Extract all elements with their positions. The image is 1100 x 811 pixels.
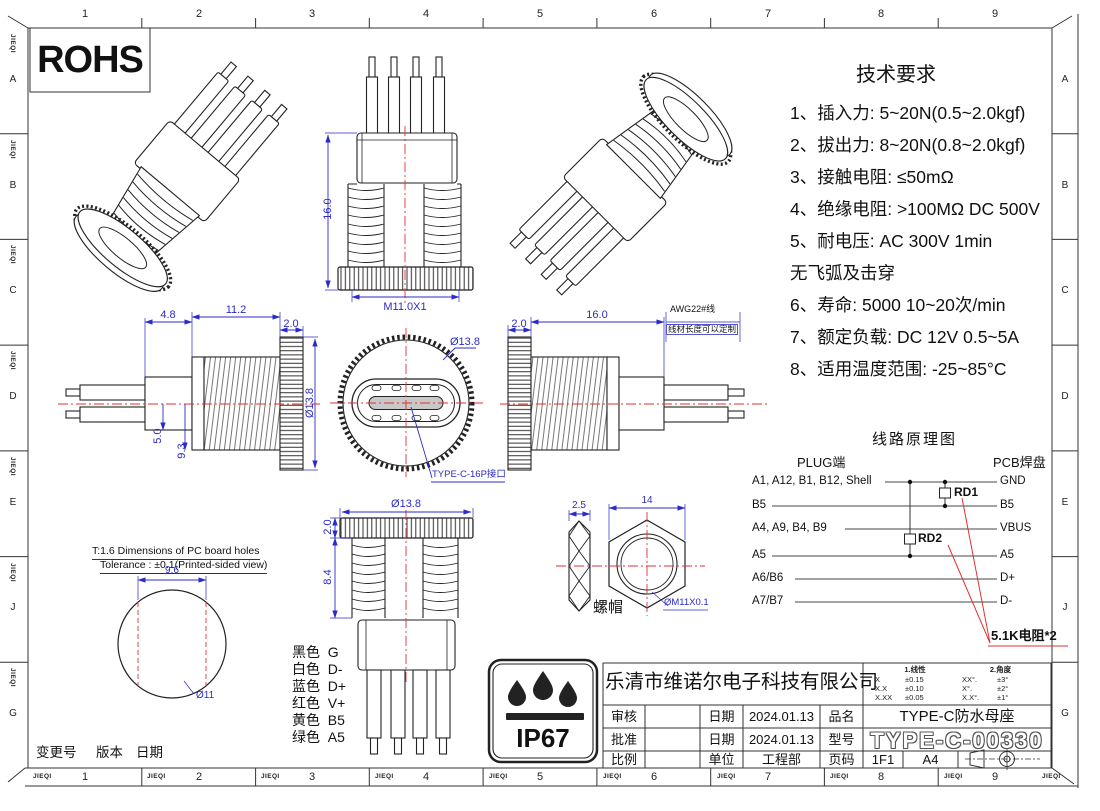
legend-row: 绿色 A5: [292, 730, 346, 747]
resistor-label-rd2: RD2: [918, 532, 942, 545]
grid-col-label: 1: [75, 771, 95, 783]
brand-mark: JIEQI: [147, 773, 166, 780]
grid-col-label: 3: [302, 8, 322, 20]
tb-label-xinghao: 型号: [820, 733, 863, 747]
iso-view-right: [493, 59, 745, 311]
dim-label: 2.0: [505, 318, 533, 330]
brand-mark: JIEQI: [375, 773, 394, 780]
dim-label: Ø13.8: [450, 336, 480, 348]
schematic-pin-right: D+: [1000, 572, 1015, 585]
brand-mark: JIEQI: [9, 140, 16, 159]
grid-col-label: 8: [871, 771, 891, 783]
dim-label: 16.0: [322, 193, 334, 225]
tolerance-key: X.X°.: [962, 694, 979, 702]
grid-col-label: 5: [530, 771, 550, 783]
grid-row-label: C: [1056, 285, 1074, 296]
revision-date-label: 日期: [136, 746, 163, 761]
tech-line: 3、接触电阻: ≤50mΩ: [790, 168, 954, 187]
brand-mark: JIEQI: [717, 773, 736, 780]
tolerance-key: X.XX: [875, 694, 892, 702]
dim-label: ØM11X0.1: [664, 598, 709, 608]
brand-mark: JIEQI: [9, 351, 16, 370]
tech-line: 7、额定负载: DC 12V 0.5~5A: [790, 328, 1019, 347]
tech-line: 5、耐电压: AC 300V 1min: [790, 232, 992, 251]
dim-label: 5.0: [152, 424, 164, 448]
side-view-left: [58, 312, 322, 470]
brand-mark: JIEQI: [9, 457, 16, 476]
revision-version-label: 版本: [96, 746, 123, 761]
tolerance-val: ±0.05: [905, 694, 924, 702]
grid-row-label: D: [1056, 391, 1074, 402]
legend-color: 黄色: [292, 712, 320, 728]
dim-label: Ø11: [196, 690, 214, 701]
tolerance-key: XX°.: [962, 676, 977, 684]
grid-row-label: A: [1056, 74, 1074, 85]
dim-label: Ø13.8: [304, 385, 316, 421]
grid-col-label: 9: [985, 8, 1005, 20]
grid-row-label: G: [1056, 708, 1074, 719]
grid-col-label: 7: [758, 8, 778, 20]
tb-label-yema: 页码: [820, 753, 863, 767]
wire-color-legend: 黑色 G 白色 D- 蓝色 D+ 红色 V+ 黄色 B5 绿色 A5: [292, 645, 346, 747]
legend-signal: B5: [328, 712, 345, 728]
schematic-pin-left: A1, A12, B1, B12, Shell: [752, 475, 872, 488]
brand-mark: JIEQI: [944, 773, 963, 780]
tech-line: 1、插入力: 5~20N(0.5~2.0kgf): [790, 104, 1025, 123]
tb-part-name: TYPE-C防水母座: [863, 709, 1051, 726]
dim-label: 4.8: [154, 309, 182, 321]
legend-color: 红色: [292, 695, 320, 711]
wire-note-label: 线材长度可以定制: [666, 324, 738, 335]
tb-model-number: TYPE-C-00330: [863, 729, 1051, 753]
grid-col-label: 2: [189, 771, 209, 783]
dim-label: 14: [633, 495, 661, 506]
schematic-pin-right: B5: [1000, 499, 1014, 512]
brand-mark: JIEQI: [261, 773, 280, 780]
legend-color: 绿色: [292, 729, 320, 745]
schematic-pin-left: A6/B6: [752, 572, 783, 585]
tolerance-val: ±3°: [997, 676, 1008, 684]
legend-row: 红色 V+: [292, 696, 346, 713]
brand-mark: JIEQI: [603, 773, 622, 780]
drawing-sheet: 1 2 3 4 5 6 7 8 9 A B C D E J G JIEQI JI…: [0, 0, 1100, 811]
brand-mark: JIEQI: [1042, 773, 1061, 780]
brand-mark: JIEQI: [9, 34, 16, 53]
pc-board-hole-view: [118, 576, 226, 698]
tb-label-riqi: 日期: [700, 710, 743, 724]
schematic-lines: [772, 480, 1068, 646]
schematic-pin-left: A4, A9, B4, B9: [752, 522, 827, 535]
grid-col-label: 6: [644, 8, 664, 20]
legend-row: 蓝色 D+: [292, 679, 346, 696]
tb-label-pinming: 品名: [820, 710, 863, 724]
legend-row: 黑色 G: [292, 645, 346, 662]
tb-label-bili: 比例: [603, 753, 645, 767]
grid-row-label: B: [1056, 180, 1074, 191]
schematic-pin-left: B5: [752, 499, 766, 512]
schematic-title: 线路原理图: [872, 432, 957, 449]
schematic-pcb-header: PCB焊盘: [993, 456, 1046, 470]
legend-color: 蓝色: [292, 678, 320, 694]
port-label: TYPE-C-16P接口: [432, 470, 506, 480]
dim-label: Ø13.8: [378, 498, 434, 510]
grid-row-label: J: [1056, 602, 1074, 613]
grid-row-label: J: [4, 602, 22, 613]
wire-spec-label: AWG22#线: [670, 305, 715, 315]
grid-row-label: B: [4, 180, 22, 191]
ip67-badge: IP67: [489, 724, 597, 753]
schematic-pin-right: D-: [1000, 595, 1012, 608]
legend-signal: A5: [328, 729, 345, 745]
company-name: 乐清市维诺尔电子科技有限公司: [605, 672, 861, 693]
grid-row-label: D: [4, 391, 22, 402]
tolerance-linear-title: 1.线性: [875, 666, 955, 674]
brand-mark: JIEQI: [489, 773, 508, 780]
tb-page-value: 1F1: [863, 753, 903, 767]
side-view-right: [500, 312, 768, 470]
grid-col-label: 5: [530, 8, 550, 20]
dim-label: 11.2: [222, 304, 250, 316]
legend-signal: D+: [328, 678, 346, 694]
legend-signal: G: [328, 644, 339, 660]
brand-mark: JIEQI: [9, 245, 16, 264]
nut-name-label: 螺帽: [593, 600, 623, 617]
grid-col-label: 3: [302, 771, 322, 783]
dim-label: 16.0: [583, 309, 611, 321]
tech-line: 无飞弧及击穿: [790, 264, 895, 283]
grid-col-label: 1: [75, 8, 95, 20]
legend-color: 白色: [292, 661, 320, 677]
tb-label-danwei: 单位: [700, 753, 743, 767]
resistor-note: 5.1K电阻*2: [991, 629, 1057, 643]
schematic-pin-right: GND: [1000, 475, 1026, 488]
pcboard-title: T:1.6 Dimensions of PC board holes: [92, 546, 260, 560]
grid-col-label: 4: [416, 8, 436, 20]
grid-row-label: E: [1056, 497, 1074, 508]
tolerance-key: X: [875, 676, 880, 684]
tb-date-value: 2024.01.13: [743, 710, 820, 724]
tolerance-val: ±2°: [997, 685, 1008, 693]
schematic-plug-header: PLUG端: [797, 456, 845, 470]
legend-color: 黑色: [292, 644, 320, 660]
legend-signal: V+: [328, 695, 346, 711]
tolerance-angle-title: 2.角度: [958, 666, 1043, 674]
dim-label: 9.3: [176, 439, 188, 463]
brand-mark: JIEQI: [9, 668, 16, 687]
dim-label: 9.6: [158, 565, 186, 576]
tech-line: 6、寿命: 5000 10~20次/min: [790, 296, 1005, 315]
grid-row-label: C: [4, 285, 22, 296]
grid-col-label: 8: [871, 8, 891, 20]
tolerance-val: ±0.15: [905, 676, 924, 684]
dim-label: M11.0X1: [377, 301, 433, 313]
tech-line: 4、绝缘电阻: >100MΩ DC 500V: [790, 200, 1040, 219]
dim-label: 2.0: [277, 318, 305, 330]
tb-dept-value: 工程部: [743, 753, 820, 767]
dim-label: 8.4: [322, 565, 334, 589]
tb-size-value: A4: [903, 753, 958, 767]
grid-row-label: G: [4, 708, 22, 719]
grid-col-label: 2: [189, 8, 209, 20]
schematic-pin-left: A5: [752, 549, 766, 562]
grid-row-label: E: [4, 497, 22, 508]
brand-mark: JIEQI: [830, 773, 849, 780]
tech-line: 2、拔出力: 8~20N(0.8~2.0kgf): [790, 136, 1025, 155]
schematic-pin-left: A7/B7: [752, 595, 783, 608]
front-view: [325, 57, 473, 303]
legend-signal: D-: [328, 661, 343, 677]
schematic-pin-right: VBUS: [1000, 522, 1031, 535]
grid-col-label: 9: [985, 771, 1005, 783]
schematic-pin-right: A5: [1000, 549, 1014, 562]
dim-label: 2.0: [322, 515, 334, 539]
tolerance-val: ±1°: [997, 694, 1008, 702]
resistor-label-rd1: RD1: [954, 486, 978, 499]
brand-mark: JIEQI: [9, 563, 16, 582]
tb-label-riqi: 日期: [700, 733, 743, 747]
grid-row-label: A: [4, 74, 22, 85]
tb-label-shenhe: 审核: [603, 710, 645, 724]
tolerance-val: ±0.10: [905, 685, 924, 693]
tb-label-pizhun: 批准: [603, 733, 645, 747]
dim-label: 2.5: [565, 500, 593, 511]
bottom-view: [330, 508, 473, 754]
tech-line: 8、适用温度范围: -25~85°C: [790, 360, 1007, 379]
face-view: [330, 328, 505, 482]
grid-col-label: 4: [416, 771, 436, 783]
tb-date-value: 2024.01.13: [743, 733, 820, 747]
grid-col-label: 6: [644, 771, 664, 783]
tolerance-key: X°.: [962, 685, 972, 693]
grid-col-label: 7: [758, 771, 778, 783]
rohs-badge: ROHS: [30, 28, 150, 92]
brand-mark: JIEQI: [33, 773, 52, 780]
tolerance-key: X.X: [875, 685, 887, 693]
revision-change-label: 变更号: [36, 746, 77, 761]
tech-requirements-title: 技术要求: [856, 64, 936, 86]
legend-row: 黄色 B5: [292, 713, 346, 730]
legend-row: 白色 D-: [292, 662, 346, 679]
